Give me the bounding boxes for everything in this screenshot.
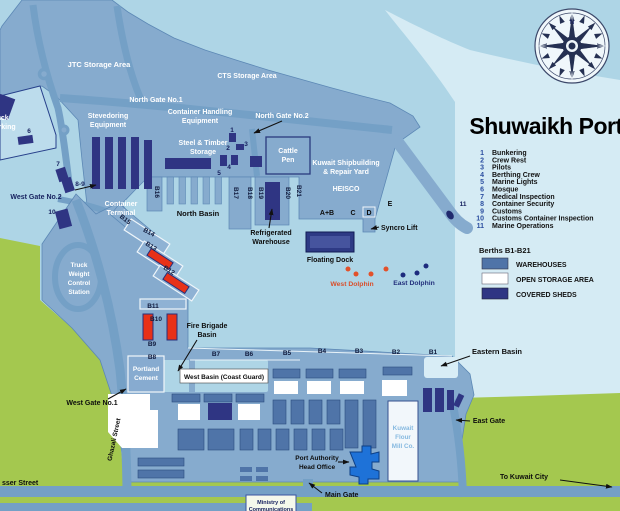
berth-b17: B17	[232, 187, 239, 199]
label-east-gate: East Gate	[473, 418, 505, 425]
svg-text:Customs: Customs	[492, 208, 522, 215]
svg-text:4: 4	[480, 172, 484, 179]
label-quay-d: D	[366, 210, 371, 217]
label-cts-storage: CTS Storage Area	[217, 73, 276, 80]
svg-text:Container Security: Container Security	[492, 201, 554, 208]
svg-text:COVERED SHEDS: COVERED SHEDS	[516, 292, 577, 299]
port-map: JTC Storage Area CTS Storage Area North …	[0, 0, 620, 511]
label-shipyard-1: Kuwait Shipbuilding	[312, 160, 379, 167]
label-floating-dock: Floating Dock	[307, 257, 353, 264]
label-refrigerated-2: Warehouse	[252, 239, 290, 246]
marker-4: 4	[227, 164, 231, 171]
label-truck-weight-3: Control	[68, 280, 91, 287]
label-west-basin: West Basin (Coast Guard)	[184, 374, 264, 381]
flour-mill-building	[388, 401, 418, 481]
warehouses-swatch	[482, 258, 508, 269]
label-truck-weight-2: Weight	[69, 271, 91, 278]
label-steel-timber-1: Steel & Timber	[179, 140, 228, 147]
berth-b9: B9	[148, 341, 157, 348]
label-main-gate: Main Gate	[325, 492, 359, 499]
svg-text:1: 1	[480, 150, 484, 157]
berth-b10: B10	[150, 316, 162, 323]
label-container-terminal-1: Container	[105, 201, 138, 208]
main-gate-road	[303, 479, 313, 497]
berth-b16: B16	[153, 186, 160, 198]
marker-2: 2	[226, 145, 230, 152]
svg-text:WAREHOUSES: WAREHOUSES	[516, 262, 567, 269]
marker-10: 10	[48, 209, 56, 216]
label-west-gate-2: West Gate No.2	[10, 194, 61, 201]
compass-north-label: N	[570, 20, 574, 26]
label-ministry-1: Ministry of	[257, 500, 285, 506]
label-quay-c: C	[350, 210, 355, 217]
open-storage-row	[274, 380, 407, 396]
label-quay-e: E	[388, 201, 393, 208]
refrigerated-warehouse-building	[265, 182, 280, 220]
svg-text:Customs Container Inspection: Customs Container Inspection	[492, 216, 594, 223]
label-ministry-2: Communications	[249, 507, 294, 511]
label-west-gate-1: West Gate No.1	[66, 400, 117, 407]
label-north-gate-2: North Gate No.2	[255, 113, 308, 120]
svg-text:5: 5	[480, 179, 484, 186]
label-jtc-storage: JTC Storage Area	[68, 60, 131, 69]
svg-text:9: 9	[480, 208, 484, 215]
svg-text:Mosque: Mosque	[492, 187, 519, 194]
label-truck-parking-2: Parking	[0, 124, 16, 131]
label-north-gate-1: North Gate No.1	[129, 97, 182, 104]
label-quay-ab: A+B	[320, 210, 334, 217]
label-refrigerated-1: Refrigerated	[250, 230, 291, 237]
warehouse-row-c	[172, 394, 264, 402]
label-east-dolphin: East Dolphin	[393, 280, 435, 287]
label-nasser-street: sser Street	[2, 480, 39, 487]
label-fire-brigade-2: Basin	[197, 332, 216, 339]
roundabout	[40, 70, 49, 79]
svg-text:3: 3	[480, 165, 484, 172]
berth-b8: B8	[148, 354, 157, 361]
label-container-handling-1: Container Handling	[168, 109, 233, 116]
label-cattle-pen-1: Cattle	[278, 148, 298, 155]
svg-text:Berthing Crew: Berthing Crew	[492, 172, 540, 179]
marker-1: 1	[230, 127, 234, 134]
label-fire-brigade-1: Fire Brigade	[187, 323, 228, 330]
svg-text:Pilots: Pilots	[492, 165, 511, 172]
marker-11: 11	[460, 201, 467, 208]
label-truck-parking-1: Truck	[0, 115, 9, 122]
green-east	[458, 393, 620, 497]
storage-row-d	[178, 403, 260, 420]
svg-text:Marine Operations: Marine Operations	[492, 223, 554, 230]
covered-sheds-swatch	[482, 288, 508, 299]
berth-b3: B3	[355, 348, 364, 355]
label-port-authority-2: Head Office	[299, 464, 336, 471]
berth-b1: B1	[429, 349, 438, 356]
label-steel-timber-2: Storage	[190, 149, 216, 156]
label-flour-mill-2: Flour	[395, 434, 411, 441]
svg-text:Marine Lights: Marine Lights	[492, 179, 538, 186]
crane-red	[167, 314, 177, 340]
marker-3: 3	[244, 141, 248, 148]
roundabout	[60, 126, 68, 134]
svg-text:OPEN STORAGE AREA: OPEN STORAGE AREA	[516, 277, 594, 284]
berth-b11: B11	[147, 303, 159, 310]
portland-cement-area	[128, 356, 164, 392]
svg-text:10: 10	[476, 216, 484, 223]
floating-dock-inner	[310, 236, 350, 248]
marker-6: 6	[27, 128, 31, 135]
label-truck-weight-4: Station	[68, 289, 89, 296]
page-title: Shuwaikh Port	[469, 113, 620, 139]
label-cattle-pen-2: Pen	[282, 157, 295, 164]
label-truck-weight-1: Truck	[71, 262, 88, 269]
map-canvas: JTC Storage Area CTS Storage Area North …	[0, 0, 620, 511]
svg-text:8: 8	[480, 201, 484, 208]
svg-text:2: 2	[480, 157, 484, 164]
berth-b19: B19	[257, 187, 264, 199]
berth-b21: B21	[295, 185, 302, 197]
label-heisco: HEISCO	[333, 186, 360, 193]
berths-heading: Berths B1-B21	[479, 246, 531, 255]
label-port-authority-1: Port Authority	[295, 455, 339, 462]
label-west-dolphin: West Dolphin	[330, 281, 373, 288]
berth-b5: B5	[283, 350, 292, 357]
label-syncro-lift: Syncro Lift	[381, 225, 418, 232]
svg-text:Medical Inspection: Medical Inspection	[492, 194, 555, 201]
open-storage-swatch	[482, 273, 508, 284]
svg-text:11: 11	[477, 223, 485, 230]
pier-b17-b18	[229, 177, 251, 229]
label-container-handling-2: Equipment	[182, 118, 219, 125]
label-north-basin: North Basin	[177, 209, 220, 218]
label-to-kuwait-city: To Kuwait City	[500, 474, 548, 481]
steel-timber-shed	[165, 158, 211, 169]
eastern-basin-water	[424, 357, 458, 378]
marker-8-9: 8-9	[75, 181, 85, 188]
label-stevedoring-1: Stevedoring	[88, 113, 128, 120]
berth-b2: B2	[392, 349, 401, 356]
berth-b7: B7	[212, 351, 221, 358]
svg-text:Crew Rest: Crew Rest	[492, 157, 527, 164]
compass-rose-icon: N	[535, 9, 609, 83]
marker-7: 7	[56, 161, 60, 168]
svg-text:7: 7	[480, 194, 484, 201]
label-flour-mill-3: Mill Co.	[392, 443, 415, 450]
label-shipyard-2: & Repair Yard	[323, 169, 369, 176]
svg-text:Bunkering: Bunkering	[492, 150, 527, 157]
label-portland-2: Cement	[134, 375, 159, 382]
label-flour-mill-1: Kuwait	[393, 425, 415, 432]
marker-5: 5	[217, 170, 221, 177]
svg-text:6: 6	[480, 187, 484, 194]
label-stevedoring-2: Equipment	[90, 122, 127, 129]
berth-b4: B4	[318, 348, 327, 355]
berth-b20: B20	[284, 187, 291, 199]
label-eastern-basin: Eastern Basin	[472, 347, 522, 356]
berth-b18: B18	[246, 187, 253, 199]
warehouse-row-e	[178, 429, 343, 450]
berth-b6: B6	[245, 351, 254, 358]
label-portland-1: Portland	[133, 366, 159, 373]
